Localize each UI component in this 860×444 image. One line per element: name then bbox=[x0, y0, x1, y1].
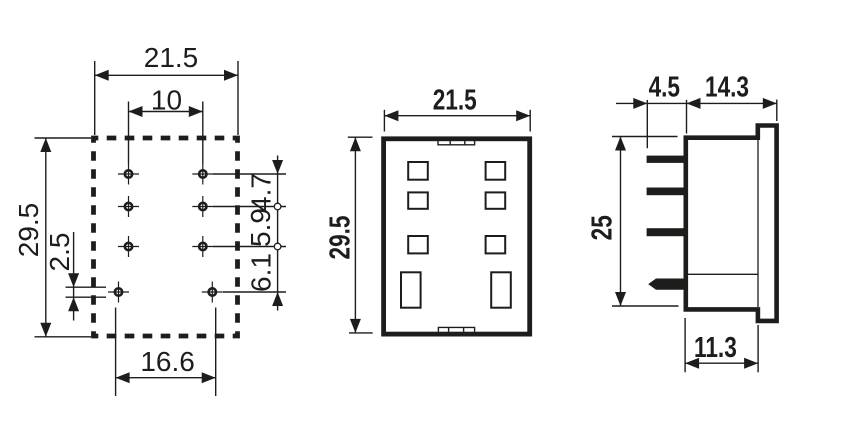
svg-text:16.6: 16.6 bbox=[140, 346, 195, 377]
svg-text:29.5: 29.5 bbox=[13, 203, 44, 258]
svg-text:25: 25 bbox=[585, 215, 618, 240]
svg-text:21.5: 21.5 bbox=[433, 83, 477, 116]
svg-text:14.3: 14.3 bbox=[705, 70, 749, 103]
svg-text:4.7: 4.7 bbox=[246, 173, 277, 212]
svg-text:5.9: 5.9 bbox=[245, 208, 276, 247]
svg-text:2.5: 2.5 bbox=[44, 233, 75, 272]
svg-text:29.5: 29.5 bbox=[323, 215, 356, 259]
svg-text:10: 10 bbox=[151, 85, 182, 116]
svg-text:6.1: 6.1 bbox=[246, 253, 277, 292]
svg-text:11.3: 11.3 bbox=[694, 330, 737, 363]
svg-text:4.5: 4.5 bbox=[649, 70, 680, 103]
svg-text:21.5: 21.5 bbox=[144, 42, 199, 73]
